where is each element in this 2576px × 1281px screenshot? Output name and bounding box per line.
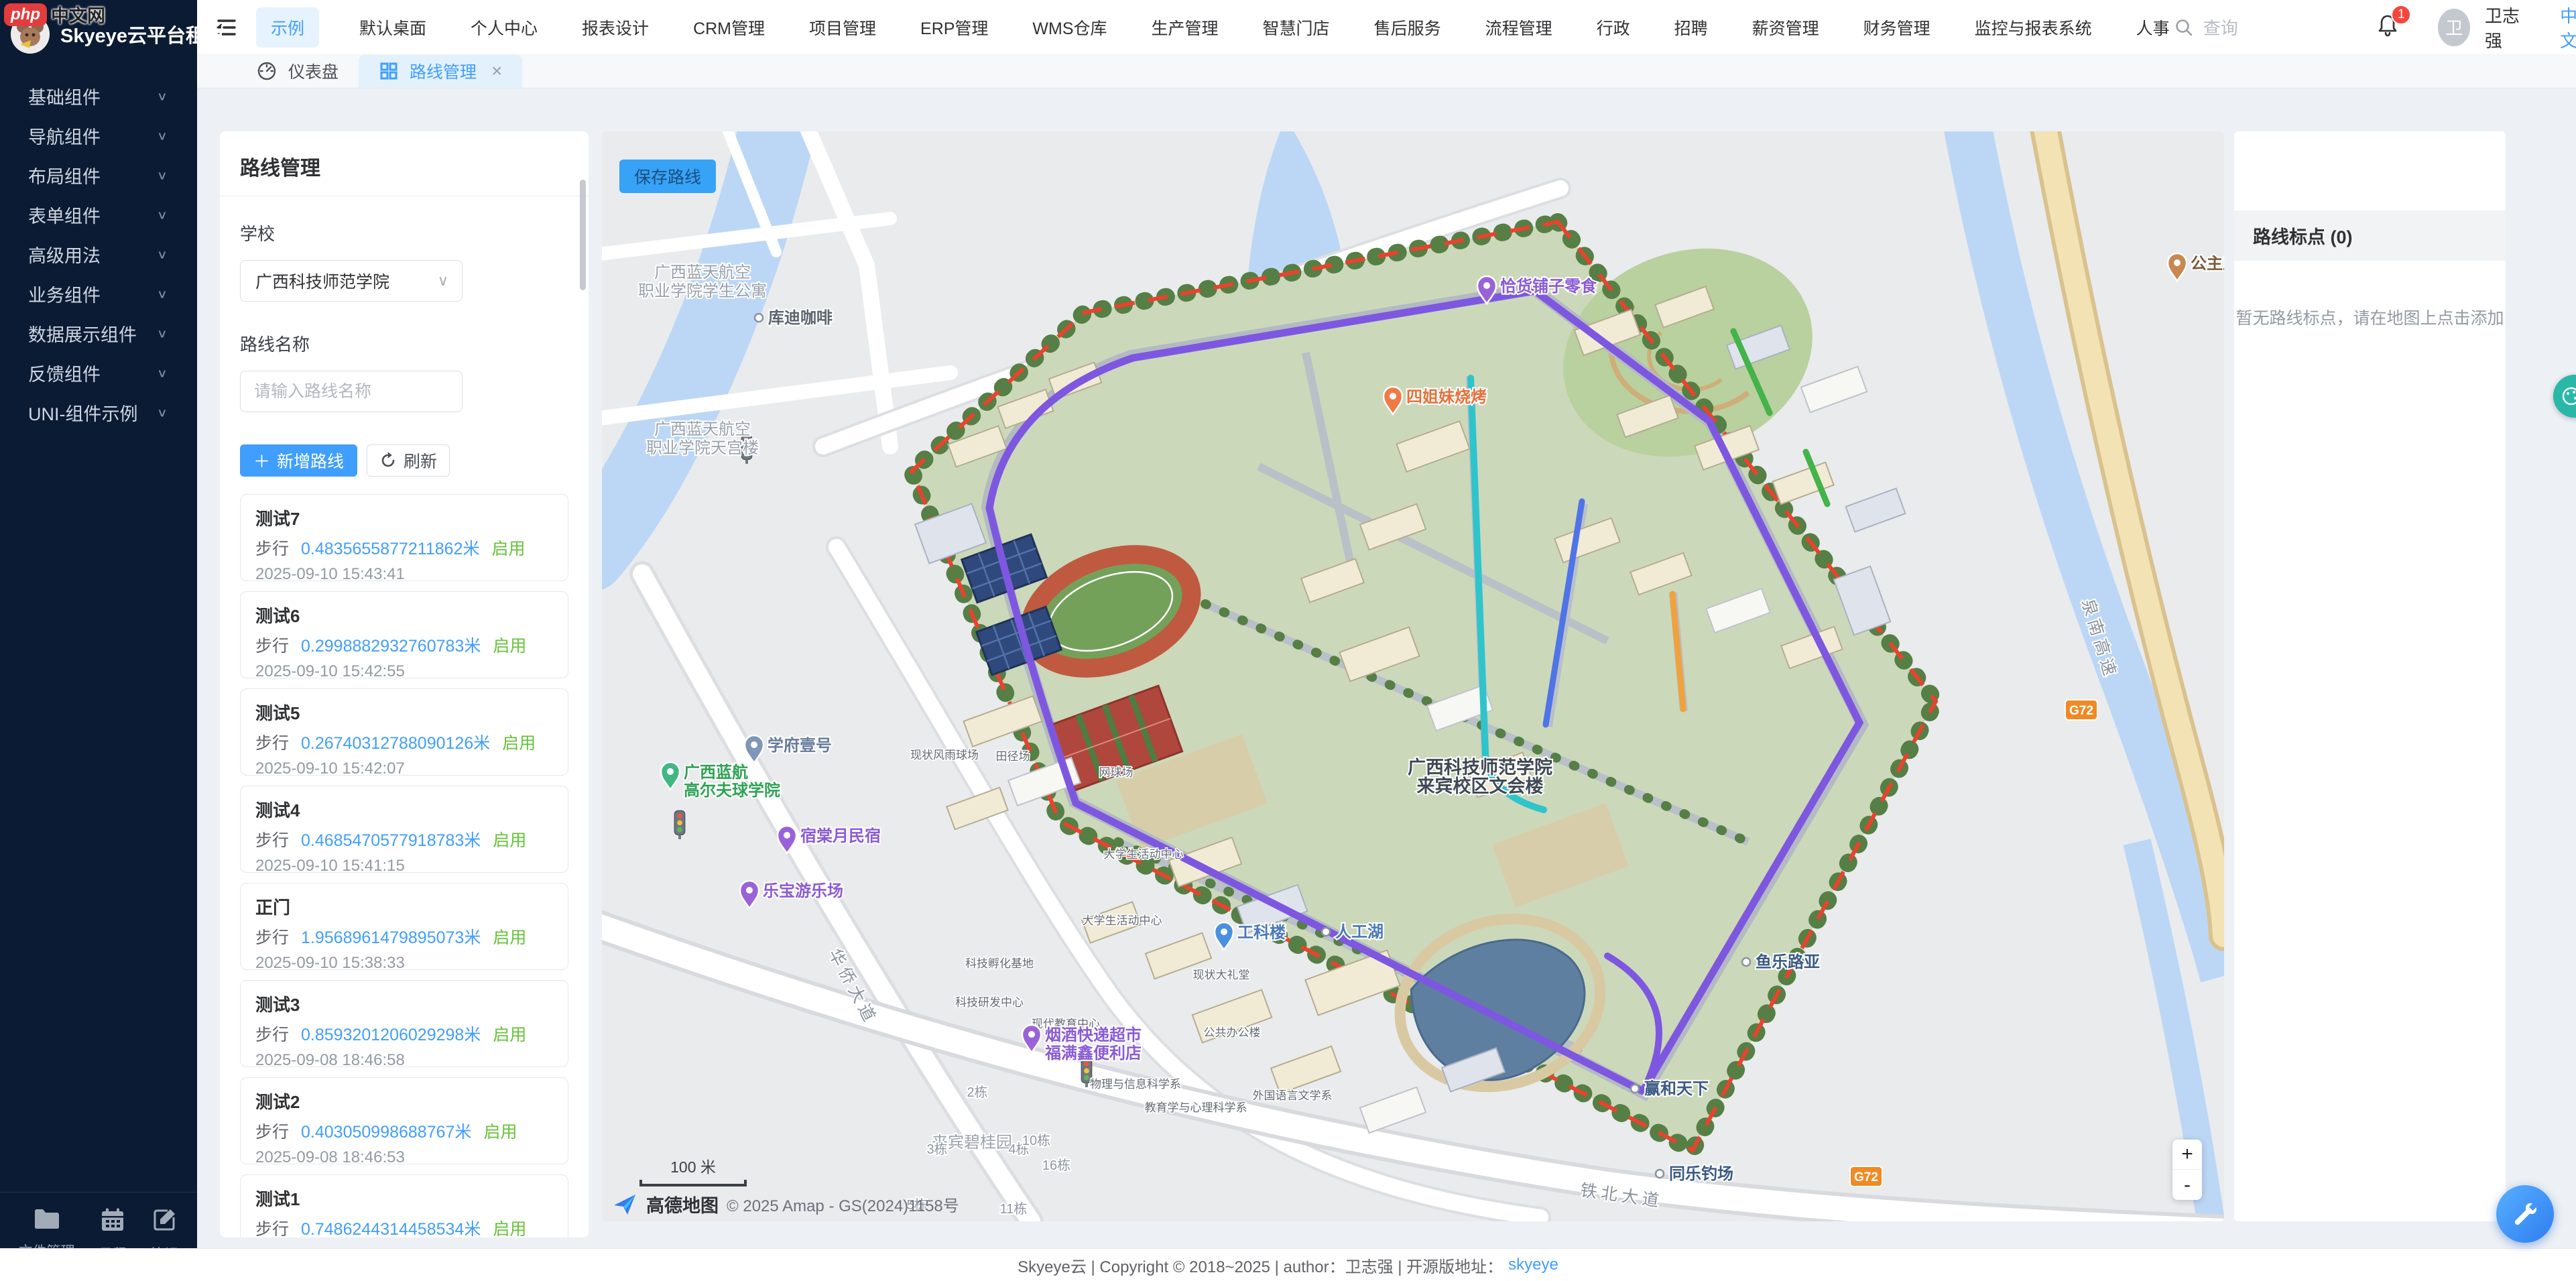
page-root: php 中文网 Skyeye云平台租户 基础组件∨导航组件∨布局组件∨表单组件∨… [0, 0, 2576, 1281]
avatar[interactable]: 卫 [2438, 9, 2470, 46]
route-mode: 步行 [255, 827, 289, 851]
sidebar-item-label: UNI-组件示例 [28, 400, 138, 426]
route-card-测试5[interactable]: 测试5步行0.26740312788090126米启用2025-09-10 15… [240, 688, 568, 776]
chevron-down-icon: ∨ [438, 272, 448, 290]
route-mode: 步行 [255, 536, 289, 560]
chevron-down-icon: ∨ [157, 366, 168, 380]
area-label: 11栋 [1000, 1201, 1028, 1217]
route-info: 步行1.9568961479895073米启用 [255, 924, 553, 949]
poi-label: 四姐妹烧烤 [1406, 388, 1487, 406]
poi-label: 同乐钓场 [1669, 1165, 1733, 1183]
tab-bar: 仪表盘 路线管理 × [197, 55, 2576, 88]
poi-label: 乐宝游乐场 [763, 881, 843, 900]
language-switcher[interactable]: 中文 [2560, 3, 2576, 52]
sidebar-item-label: 布局组件 [28, 162, 101, 188]
status-badge: 启用 [483, 1119, 517, 1143]
search-placeholder: 查询 [2203, 15, 2238, 40]
nav-item-9[interactable]: 智慧门店 [1259, 7, 1334, 48]
poi-label: 工科楼 [1237, 924, 1286, 942]
route-marker-panel: 路线标点 (0) 暂无路线标点，请在地图上点击添加 [2234, 131, 2506, 1221]
palette-icon [2560, 385, 2576, 408]
floating-tools-button[interactable] [2496, 1185, 2554, 1243]
chevron-down-icon: ∨ [157, 247, 168, 261]
route-name: 测试2 [255, 1089, 553, 1113]
poi-dot-icon [1656, 1170, 1664, 1178]
footer-text: Skyeye云 | Copyright © 2018~2025 | author… [1018, 1254, 1503, 1277]
area-label-text: 10栋 [1022, 1133, 1050, 1148]
highway-badge-text: G72 [2069, 704, 2093, 718]
poi-label: 学府壹号 [768, 736, 832, 755]
note-icon [151, 1207, 177, 1237]
nav-item-16[interactable]: 监控与报表系统 [1971, 7, 2096, 48]
nav-item-0[interactable]: 示例 [256, 7, 319, 48]
sidebar-item-label: 表单组件 [28, 202, 101, 228]
header: 示例默认桌面个人中心报表设计CRM管理项目管理ERP管理WMS仓库生产管理智慧门… [197, 0, 2576, 55]
add-route-button[interactable]: ＋ 新增路线 [240, 444, 357, 477]
route-name: 测试7 [255, 505, 553, 530]
nav-item-1[interactable]: 默认桌面 [355, 7, 430, 48]
route-info: 步行0.403050998688767米启用 [255, 1119, 553, 1143]
user-name: 卫志强 [2485, 3, 2529, 52]
poi-pin-dot [1028, 1031, 1035, 1038]
route-distance: 0.7486244314458534米 [301, 1216, 481, 1237]
route-card-测试6[interactable]: 测试6步行0.2998882932760783米启用2025-09-10 15:… [240, 591, 568, 678]
route-card-测试2[interactable]: 测试2步行0.403050998688767米启用2025-09-08 18:4… [240, 1077, 568, 1164]
route-name: 测试4 [255, 797, 553, 822]
area-label: 3栋 [926, 1142, 947, 1157]
building-label: 现状风雨球场 [910, 749, 979, 761]
nav-item-6[interactable]: ERP管理 [916, 7, 992, 48]
route-card-测试7[interactable]: 测试7步行0.4835655877211862米启用2025-09-10 15:… [240, 494, 568, 581]
school-label: 学校 [240, 221, 568, 245]
building-label: 大学生活动中心 [1083, 914, 1162, 927]
zoom-in-button[interactable]: + [2172, 1140, 2202, 1170]
poi-pin-dot [751, 741, 757, 748]
chevron-down-icon: ∨ [157, 129, 168, 143]
poi-label: 鱼乐路亚 [1756, 953, 1820, 971]
poi-pin-dot [1483, 282, 1490, 289]
route-info: 步行0.26740312788090126米启用 [255, 730, 553, 754]
poi-pin-dot [746, 887, 753, 894]
building-label: 公共办公楼 [1204, 1026, 1261, 1039]
poi-pin-dot [667, 768, 674, 775]
route-mode: 步行 [255, 1022, 289, 1046]
nav-item-8[interactable]: 生产管理 [1148, 7, 1223, 48]
route-mode: 步行 [255, 924, 289, 949]
grid-icon [379, 61, 399, 81]
building-label: 科技孵化基地 [965, 957, 1034, 970]
chevron-down-icon: ∨ [157, 89, 168, 103]
refresh-button[interactable]: 刷新 [367, 444, 450, 477]
folder-icon [34, 1207, 60, 1234]
route-timestamp: 2025-09-08 18:46:58 [255, 1051, 553, 1070]
area-label: 广西蓝天航空职业学院学生公寓 [638, 263, 767, 300]
status-badge: 启用 [493, 633, 526, 657]
area-label: 16栋 [1042, 1158, 1070, 1173]
route-name: 正门 [255, 894, 553, 919]
map-zoom-control: + - [2172, 1140, 2202, 1200]
nav-item-13[interactable]: 招聘 [1670, 7, 1712, 48]
area-label-text: 广西科技师范学院来宾校区文会楼 [1408, 757, 1552, 796]
poi-label: 库迪咖啡 [768, 309, 833, 327]
map-attribution: 高德地图 © 2025 Amap - GS(2024)1158号 [611, 1191, 959, 1217]
route-distance: 0.8593201206029298米 [301, 1022, 481, 1046]
building-label: 网球场 [1099, 766, 1133, 779]
area-label: 广西蓝天航空职业学院天宫楼 [646, 420, 759, 457]
nav-item-5[interactable]: 项目管理 [805, 7, 880, 48]
sidebar-item-label: 导航组件 [28, 123, 101, 149]
notification-badge: 1 [2391, 5, 2411, 25]
map-container[interactable]: 现状风雨球场田径场网球场大学生活动中心大学生活动中心现状大礼堂科技孵化基地科技研… [602, 131, 2224, 1221]
close-icon[interactable]: × [491, 60, 502, 82]
nav-item-17[interactable]: 人事 [2132, 7, 2174, 48]
nav-item-10[interactable]: 售后服务 [1370, 7, 1445, 48]
footer-link[interactable]: skyeye [1508, 1256, 1558, 1274]
highway-badge-text: G72 [1854, 1170, 1878, 1184]
area-label: 广西科技师范学院来宾校区文会楼 [1408, 757, 1552, 796]
search-input[interactable]: 查询 [2174, 15, 2345, 40]
area-label-text: 3栋 [926, 1142, 947, 1157]
building-label: 科技研发中心 [955, 996, 1024, 1009]
scrollbar[interactable] [580, 180, 586, 290]
area-label-text: 11栋 [1000, 1201, 1028, 1217]
sidebar-item-8[interactable]: UNI-组件示例∨ [0, 393, 197, 432]
status-badge: 启用 [493, 1216, 526, 1237]
poi-label: 烟酒快递超市福满鑫便利店 [1044, 1026, 1142, 1062]
route-distance: 0.4685470577918783米 [301, 827, 481, 851]
dashboard-icon [256, 60, 278, 82]
poi-dot-icon [755, 314, 763, 322]
route-name: 测试6 [255, 603, 553, 627]
status-badge: 启用 [493, 827, 526, 851]
building-label: 田径场 [996, 750, 1030, 763]
tab-route-management[interactable]: 路线管理 × [359, 54, 522, 88]
search-icon [2174, 17, 2194, 38]
building-label: 大学生活动中心 [1104, 848, 1184, 861]
chevron-down-icon: ∨ [157, 208, 168, 222]
poi-dot-icon [1631, 1085, 1639, 1093]
status-badge: 启用 [493, 1022, 526, 1046]
poi-label: 宿棠月民宿 [800, 827, 881, 845]
poi-pin-dot [2174, 259, 2181, 266]
marker-panel-empty-text: 暂无路线标点，请在地图上点击添加 [2234, 305, 2506, 329]
sidebar-item-3[interactable]: 表单组件∨ [0, 195, 197, 235]
poi-dot-icon [1322, 928, 1330, 936]
sidebar-menu: 基础组件∨导航组件∨布局组件∨表单组件∨高级用法∨业务组件∨数据展示组件∨反馈组… [0, 67, 197, 1192]
chevron-down-icon: ∨ [157, 406, 168, 420]
nav-item-4[interactable]: CRM管理 [689, 7, 769, 48]
route-mode: 步行 [255, 1216, 289, 1237]
route-name: 测试5 [255, 700, 553, 725]
nav-item-11[interactable]: 流程管理 [1481, 7, 1556, 48]
page-title: 路线管理 [220, 131, 589, 196]
status-badge: 启用 [502, 730, 536, 754]
sidebar-item-label: 反馈组件 [28, 360, 101, 386]
sidebar-item-label: 数据展示组件 [28, 320, 137, 347]
area-label-text: 16栋 [1042, 1158, 1070, 1173]
route-mode: 步行 [255, 730, 289, 754]
route-card-正门[interactable]: 正门步行1.9568961479895073米启用2025-09-10 15:3… [240, 883, 568, 970]
poi-label: 恰货铺子零食 [1500, 277, 1597, 296]
poi-pin-dot [1221, 928, 1227, 935]
tab-dashboard[interactable]: 仪表盘 [236, 54, 359, 88]
route-timestamp: 2025-09-10 15:38:33 [255, 954, 553, 973]
nav-item-7[interactable]: WMS仓库 [1028, 7, 1111, 48]
route-distance: 0.403050998688767米 [301, 1119, 471, 1143]
header-right: 查询 1 卫 卫志强 中文 [2174, 3, 2576, 52]
poi-pin-dot [784, 832, 790, 839]
route-timestamp: 2025-09-10 15:42:07 [255, 759, 553, 778]
route-timestamp: 2025-09-10 15:43:41 [255, 565, 553, 584]
route-distance: 1.9568961479895073米 [301, 924, 481, 949]
building-label: 教育学与心理科学系 [1145, 1101, 1247, 1114]
route-name-input[interactable] [240, 371, 463, 412]
route-timestamp: 2025-09-10 15:41:15 [255, 857, 553, 875]
route-info: 步行0.7486244314458534米启用 [255, 1216, 553, 1237]
building-label: 物理与信息科学系 [1090, 1078, 1181, 1091]
nav-item-15[interactable]: 财务管理 [1859, 7, 1935, 48]
route-distance: 0.2998882932760783米 [301, 633, 481, 657]
notification-bell[interactable]: 1 [2375, 13, 2400, 42]
status-badge: 启用 [493, 924, 526, 949]
route-info: 步行0.4835655877211862米启用 [255, 536, 553, 560]
poi-label: 赢和天下 [1644, 1079, 1709, 1098]
sidebar-item-2[interactable]: 布局组件∨ [0, 156, 197, 195]
nav-item-3[interactable]: 报表设计 [578, 7, 653, 48]
poi-dot-icon [1742, 958, 1750, 966]
route-timestamp: 2025-09-10 15:42:55 [255, 662, 553, 681]
area-label-text: 2栋 [967, 1085, 987, 1100]
map-scale: 100 米 [639, 1154, 747, 1186]
php-watermark: php 中文网 [4, 1, 105, 27]
route-timestamp: 2025-09-08 18:46:53 [255, 1148, 553, 1167]
nav-item-2[interactable]: 个人中心 [467, 7, 542, 48]
sidebar-item-label: 高级用法 [28, 241, 101, 267]
wrench-icon [2510, 1199, 2540, 1229]
route-info: 步行0.2998882932760783米启用 [255, 633, 553, 657]
plus-icon: ＋ [253, 448, 270, 473]
route-card-测试4[interactable]: 测试4步行0.4685470577918783米启用2025-09-10 15:… [240, 786, 568, 873]
route-mode: 步行 [255, 1119, 289, 1143]
area-label: 10栋 [1022, 1133, 1050, 1148]
route-mode: 步行 [255, 633, 289, 657]
poi-label: 公主庙 [2191, 254, 2224, 273]
sidebar-item-1[interactable]: 导航组件∨ [0, 116, 197, 156]
sidebar-item-label: 业务组件 [28, 281, 101, 307]
zoom-out-button[interactable]: - [2172, 1170, 2202, 1200]
refresh-icon [379, 452, 397, 469]
sidebar-item-0[interactable]: 基础组件∨ [0, 76, 197, 116]
route-distance: 0.4835655877211862米 [301, 536, 479, 560]
route-distance: 0.26740312788090126米 [301, 730, 490, 754]
route-list: 测试7步行0.4835655877211862米启用2025-09-10 15:… [240, 494, 568, 1237]
route-name: 测试3 [255, 991, 553, 1016]
poi-pin-dot [1390, 393, 1396, 400]
school-select[interactable]: 广西科技师范学院 ∨ [240, 260, 463, 302]
chevron-down-icon: ∨ [157, 168, 168, 182]
top-nav: 示例默认桌面个人中心报表设计CRM管理项目管理ERP管理WMS仓库生产管理智慧门… [256, 7, 2174, 48]
chevron-down-icon: ∨ [157, 326, 168, 341]
save-route-button[interactable]: 保存路线 [619, 160, 716, 193]
nav-item-14[interactable]: 薪资管理 [1748, 7, 1823, 48]
area-label-text: 广西蓝天航空职业学院天宫楼 [646, 420, 759, 457]
footer: Skyeye云 | Copyright © 2018~2025 | author… [0, 1248, 2576, 1281]
calendar-icon [100, 1207, 125, 1237]
amap-logo-icon [611, 1191, 638, 1217]
sidebar-item-4[interactable]: 高级用法∨ [0, 235, 197, 274]
nav-item-12[interactable]: 行政 [1593, 7, 1634, 48]
area-label: 2栋 [967, 1085, 987, 1100]
sidebar-item-7[interactable]: 反馈组件∨ [0, 353, 197, 393]
building-label: 外国语言文学系 [1253, 1089, 1333, 1102]
sidebar: Skyeye云平台租户 基础组件∨导航组件∨布局组件∨表单组件∨高级用法∨业务组… [0, 0, 197, 1281]
marker-panel-title: 路线标点 (0) [2234, 210, 2506, 261]
status-badge: 启用 [491, 536, 525, 560]
content: 路线管理 学校 广西科技师范学院 ∨ 路线名称 ＋ 新增路线 [197, 88, 2576, 1248]
sidebar-item-label: 基础组件 [28, 83, 101, 109]
php-logo: php [4, 3, 47, 26]
sidebar-item-6[interactable]: 数据展示组件∨ [0, 314, 197, 353]
route-name-label: 路线名称 [240, 331, 568, 356]
area-label-text: 广西蓝天航空职业学院学生公寓 [638, 263, 767, 300]
sidebar-item-5[interactable]: 业务组件∨ [0, 274, 197, 314]
poi-label: 人工湖 [1335, 923, 1384, 941]
chevron-down-icon: ∨ [157, 287, 168, 301]
building-label: 现状大礼堂 [1193, 969, 1250, 981]
route-panel: 路线管理 学校 广西科技师范学院 ∨ 路线名称 ＋ 新增路线 [220, 131, 589, 1237]
route-card-测试1[interactable]: 测试1步行0.7486244314458534米启用2025-09-08 18:… [240, 1174, 568, 1237]
route-info: 步行0.4685470577918783米启用 [255, 827, 553, 851]
route-card-测试3[interactable]: 测试3步行0.8593201206029298米启用2025-09-08 18:… [240, 980, 568, 1067]
route-name: 测试1 [255, 1186, 553, 1211]
route-info: 步行0.8593201206029298米启用 [255, 1022, 553, 1046]
